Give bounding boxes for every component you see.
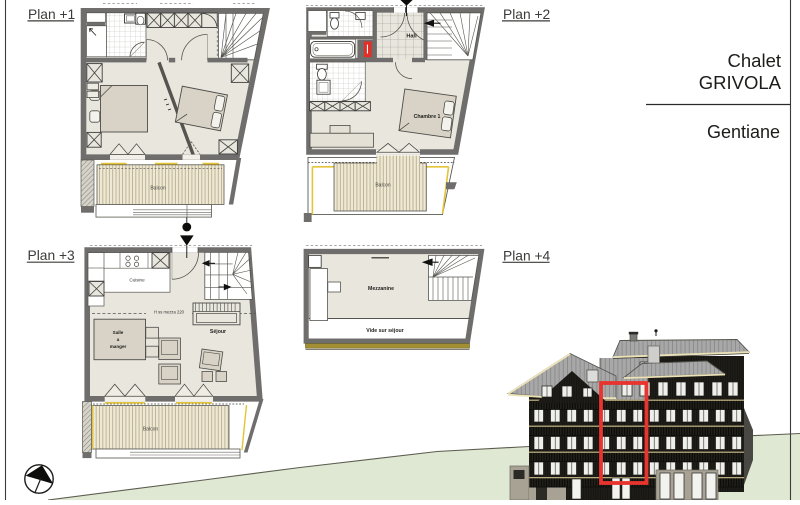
svg-text:Vide sur séjour: Vide sur séjour bbox=[366, 328, 403, 334]
svg-text:GRIVOLA: GRIVOLA bbox=[699, 72, 782, 93]
svg-text:Cuisine: Cuisine bbox=[129, 278, 145, 283]
svg-text:Gentiane: Gentiane bbox=[707, 122, 780, 142]
svg-text:Hall: Hall bbox=[406, 34, 417, 40]
svg-text:Balcon: Balcon bbox=[143, 427, 159, 433]
svg-text:Salle: Salle bbox=[113, 330, 124, 335]
svg-text:Chambre 1: Chambre 1 bbox=[414, 114, 441, 120]
svg-text:Plan +2: Plan +2 bbox=[503, 7, 550, 22]
svg-text:Plan +3: Plan +3 bbox=[28, 248, 76, 263]
svg-text:manger: manger bbox=[110, 344, 127, 349]
svg-text:Séjour: Séjour bbox=[210, 329, 226, 335]
svg-text:Balcon: Balcon bbox=[150, 186, 166, 192]
svg-text:Mezzanine: Mezzanine bbox=[368, 286, 394, 292]
svg-text:Plan +4: Plan +4 bbox=[503, 249, 551, 264]
svg-text:H ss mezza 220: H ss mezza 220 bbox=[154, 309, 185, 314]
svg-text:Chalet: Chalet bbox=[728, 50, 781, 71]
svg-text:Plan +1: Plan +1 bbox=[28, 7, 75, 22]
svg-text:a: a bbox=[117, 337, 120, 342]
svg-text:Balcon: Balcon bbox=[375, 183, 391, 189]
